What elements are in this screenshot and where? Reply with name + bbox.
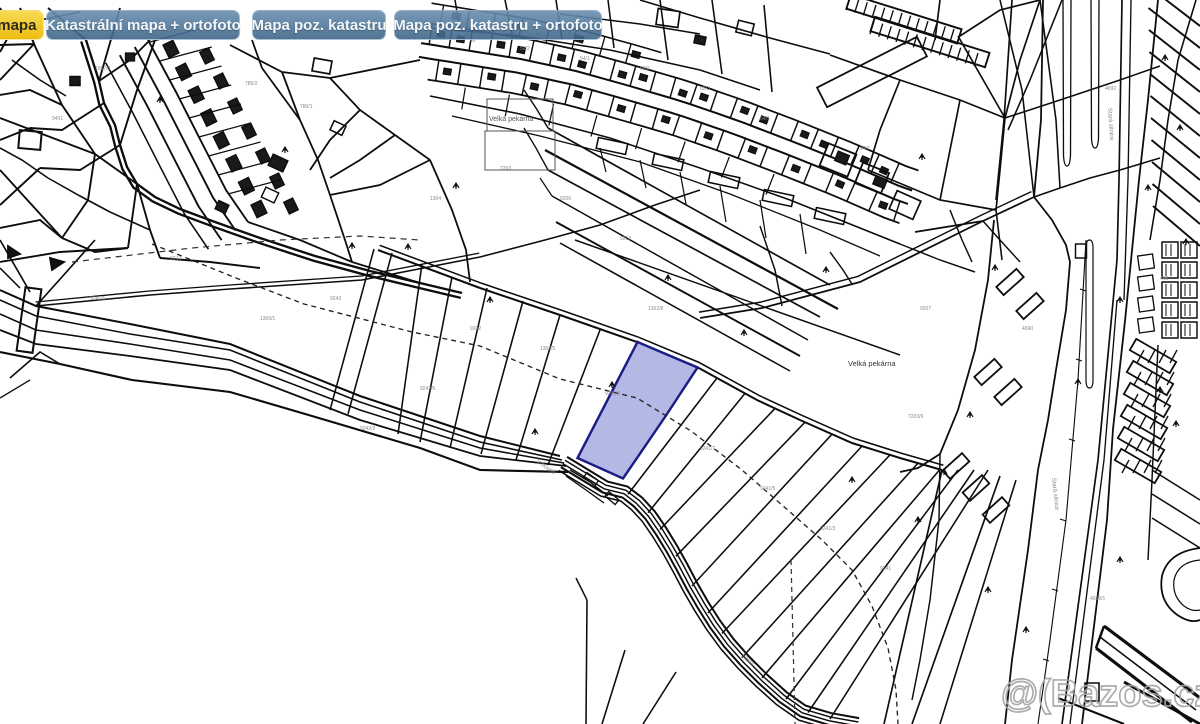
svg-text:50/2: 50/2 [520,46,530,52]
svg-text:94/7: 94/7 [860,146,870,152]
svg-text:7203/9: 7203/9 [908,414,924,420]
svg-text:9241/5: 9241/5 [760,486,776,492]
svg-text:9401: 9401 [52,116,63,122]
svg-text:1304: 1304 [430,196,441,202]
svg-text:64/1: 64/1 [760,116,770,122]
svg-text:Velká pekárna: Velká pekárna [848,359,896,368]
svg-text:4689/1: 4689/1 [1090,596,1106,602]
svg-text:785/2: 785/2 [245,81,258,87]
svg-text:54/1: 54/1 [580,56,590,62]
svg-text:9207: 9207 [920,306,931,312]
svg-text:9206: 9206 [560,196,571,202]
svg-text:Velká pekárna: Velká pekárna [489,116,533,123]
svg-text:1304/5: 1304/5 [540,346,556,352]
svg-text:9241/9: 9241/9 [605,391,621,397]
svg-text:9242/6: 9242/6 [420,386,436,392]
svg-text:9241: 9241 [880,566,891,572]
svg-text:58/2: 58/2 [640,66,650,72]
svg-text:466: 466 [1160,276,1169,282]
svg-text:7203: 7203 [500,166,511,172]
svg-text:9243: 9243 [330,296,341,302]
svg-text:9244: 9244 [170,256,181,262]
svg-text:9213: 9213 [620,236,631,242]
svg-text:780/1: 780/1 [300,104,313,110]
svg-text:9242: 9242 [470,326,481,332]
svg-text:1957/3: 1957/3 [95,66,111,72]
svg-text:62/3: 62/3 [700,86,710,92]
svg-text:9245/1: 9245/1 [90,296,106,302]
svg-text:9241/7: 9241/7 [700,446,716,452]
svg-text:4690: 4690 [1022,326,1033,332]
svg-text:4692: 4692 [1105,86,1116,92]
svg-text:1300/1: 1300/1 [260,316,276,322]
svg-text:9242/3: 9242/3 [360,426,376,432]
svg-text:1302/8: 1302/8 [648,306,664,312]
svg-text:9241/3: 9241/3 [820,526,836,532]
